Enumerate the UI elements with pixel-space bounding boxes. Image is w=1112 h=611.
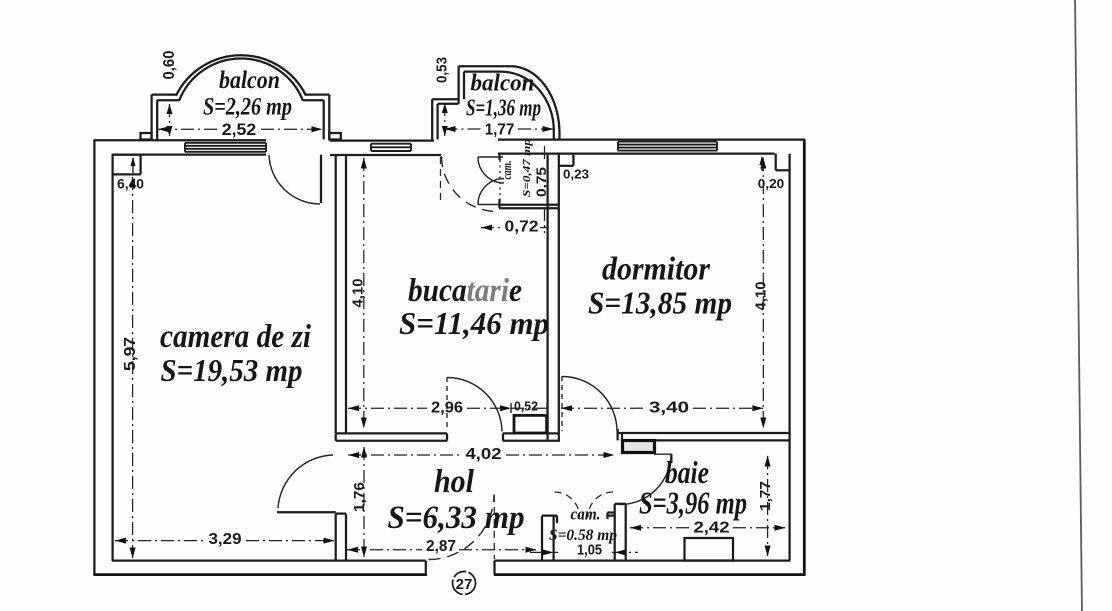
- svg-text:S=2,26 mp: S=2,26 mp: [203, 94, 292, 121]
- svg-text:5,97: 5,97: [122, 337, 139, 371]
- svg-text:dormitor: dormitor: [602, 252, 711, 288]
- svg-text:27: 27: [456, 576, 473, 593]
- svg-text:0,53: 0,53: [434, 57, 451, 83]
- svg-text:0,60: 0,60: [161, 51, 178, 80]
- svg-text:0,72: 0,72: [505, 219, 539, 236]
- svg-text:S=19,53 mp: S=19,53 mp: [161, 352, 303, 388]
- svg-text:3,40: 3,40: [649, 400, 689, 417]
- svg-text:bucatarie: bucatarie: [408, 273, 522, 309]
- svg-text:2,42: 2,42: [694, 520, 730, 537]
- svg-text:4,10: 4,10: [753, 282, 770, 311]
- svg-text:3,29: 3,29: [209, 531, 242, 548]
- svg-text:2,87: 2,87: [426, 538, 456, 555]
- svg-text:cam.: cam.: [571, 505, 601, 524]
- svg-text:6,40: 6,40: [117, 177, 144, 192]
- svg-text:S=13,85 mp: S=13,85 mp: [588, 285, 732, 321]
- svg-text:4,02: 4,02: [466, 446, 502, 463]
- svg-text:S=6,33 mp: S=6,33 mp: [388, 500, 525, 536]
- svg-text:hol: hol: [434, 464, 475, 500]
- svg-text:1,77: 1,77: [757, 481, 774, 511]
- svg-text:balcon: balcon: [219, 67, 280, 94]
- svg-text:1,77: 1,77: [485, 122, 515, 139]
- svg-text:0,23: 0,23: [563, 167, 589, 182]
- svg-text:cam.: cam.: [500, 161, 514, 180]
- svg-text:S=11,46 mp: S=11,46 mp: [399, 305, 549, 341]
- svg-text:2,52: 2,52: [222, 120, 257, 139]
- svg-text:1,05: 1,05: [577, 542, 602, 559]
- svg-text:camera de zi: camera de zi: [160, 319, 312, 355]
- svg-text:S=3,96 mp: S=3,96 mp: [639, 485, 747, 521]
- svg-text:1,76: 1,76: [351, 482, 368, 512]
- svg-text:balcon: balcon: [471, 71, 535, 97]
- svg-text:S=0.58 mp: S=0.58 mp: [549, 527, 617, 544]
- svg-text:2,96: 2,96: [431, 400, 463, 417]
- svg-text:0,52: 0,52: [514, 399, 538, 414]
- svg-text:S=1,36 mp: S=1,36 mp: [466, 96, 541, 122]
- svg-text:S=0,47 mp: S=0,47 mp: [521, 138, 533, 197]
- svg-text:0,20: 0,20: [758, 176, 785, 191]
- svg-text:4,10: 4,10: [350, 279, 367, 308]
